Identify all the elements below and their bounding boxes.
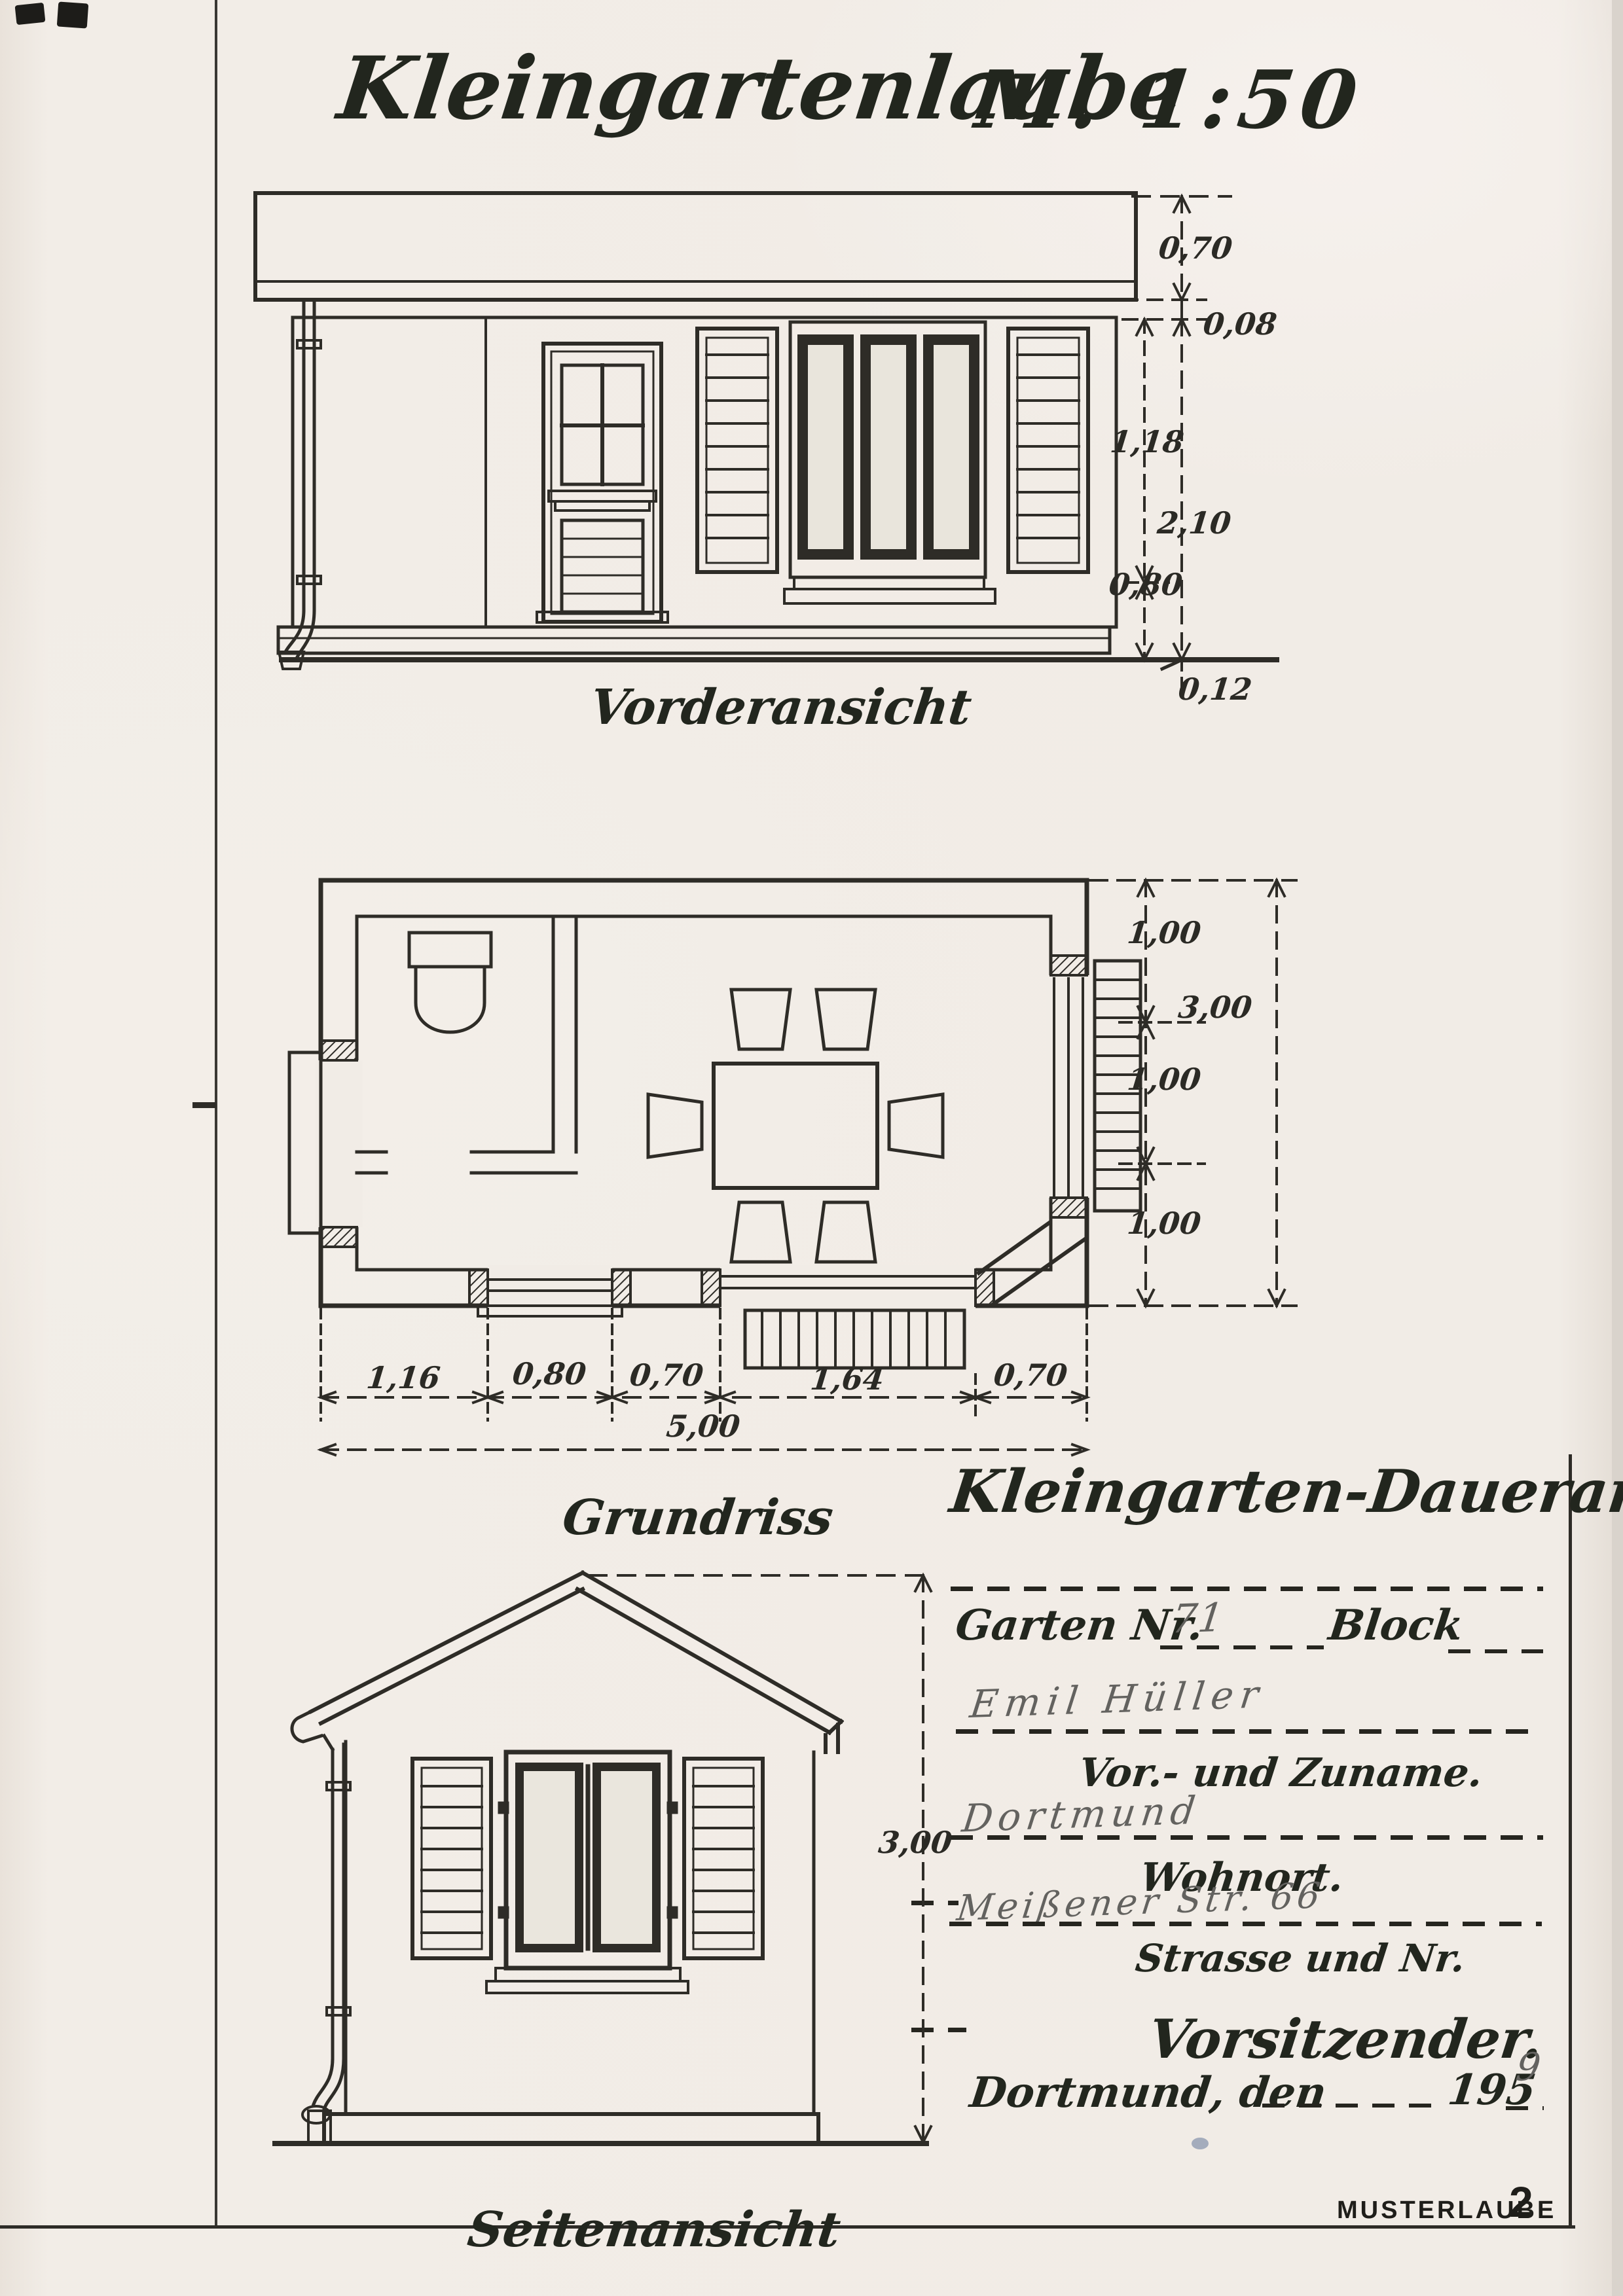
dim-label-window-band: 1,18 <box>1108 424 1186 459</box>
street-line <box>949 1922 1542 1926</box>
blue-speck <box>1192 2138 1209 2149</box>
garten-nr-value: 71 <box>1169 1594 1228 1642</box>
sheet-number: 2 <box>1509 2177 1536 2227</box>
exterior-walls <box>321 880 1087 1306</box>
side-elevation-drawing <box>259 1522 953 2189</box>
scan-artifact <box>15 3 46 25</box>
window-shutter-left <box>697 329 777 572</box>
garten-nr-line <box>1160 1645 1324 1649</box>
toilet-bowl <box>409 933 491 1032</box>
dining-table <box>714 1064 877 1188</box>
city-line <box>951 1835 1543 1840</box>
downpipe <box>279 300 321 669</box>
dim-label-plan-5: 0,70 <box>992 1357 1069 1393</box>
street-caption: Strasse und Nr. <box>1133 1936 1468 1981</box>
dim-label-plan-depth-3: 1,00 <box>1125 1206 1203 1241</box>
date-line <box>1262 2104 1439 2108</box>
dim-label-plan-depth-1: 1,00 <box>1125 915 1203 950</box>
double-window <box>486 1752 688 1993</box>
name-value: Emil Hüller <box>968 1672 1267 1727</box>
punch-mark <box>192 1102 216 1108</box>
dim-label-plan-total-depth: 3,00 <box>1176 990 1254 1025</box>
window-shutter-right <box>684 1759 763 1958</box>
dim-label-plan-total-width: 5,00 <box>665 1408 742 1444</box>
dim-label-parapet: 0,80 <box>1107 567 1184 602</box>
block-line <box>1448 1649 1543 1653</box>
window-shutter-left <box>412 1759 491 1958</box>
dim-label-roof-slab: 0,08 <box>1201 306 1279 342</box>
name-line <box>956 1729 1539 1734</box>
window-shutter-right <box>1008 329 1088 572</box>
dim-label-plan-2: 0,80 <box>511 1356 588 1391</box>
date-year-line <box>1506 2106 1544 2110</box>
flat-roof <box>255 193 1136 317</box>
date-year-hand: 9 <box>1514 2044 1544 2090</box>
side-elevation-label: Seitenansicht <box>465 2202 844 2258</box>
scan-edge-strip <box>1612 0 1623 2296</box>
chairs <box>648 990 943 1262</box>
scan-artifact <box>57 1 89 28</box>
downpipe <box>302 1736 350 2123</box>
gabled-roof <box>311 1573 841 1752</box>
page-right-border <box>1569 1454 1572 2228</box>
dim-label-plinth: 0,12 <box>1176 672 1254 707</box>
page-fold-line <box>215 0 217 2228</box>
dim-label-plan-depth-2: 1,00 <box>1125 1062 1203 1097</box>
chairman-label: Vorsitzender. <box>1145 2008 1546 2071</box>
entrance-door <box>537 344 668 622</box>
garten-nr-label: Garten Nr. <box>953 1601 1206 1650</box>
base-plinth <box>308 2111 818 2145</box>
dim-label-plan-4: 1,64 <box>809 1361 886 1397</box>
drawing-scale: M. 1:50 <box>971 52 1368 147</box>
street-value: Meißener Str. 66 <box>955 1874 1326 1929</box>
scanned-blueprint-page: Kleingartenlaube M. 1:50 <box>0 0 1623 2296</box>
date-prefix: Dortmund, den <box>967 2068 1329 2117</box>
gutter <box>292 1712 321 1742</box>
name-caption: Vor.- und Zuname. <box>1076 1750 1486 1796</box>
city-value: Dortmund <box>960 1787 1203 1840</box>
dim-label-plan-3: 0,70 <box>628 1357 705 1393</box>
window-triple <box>784 322 995 603</box>
block-label: Block <box>1326 1601 1466 1650</box>
toilet-room <box>357 916 576 1173</box>
dim-label-side-height: 3,00 <box>877 1825 954 1860</box>
form-rule <box>951 1587 1543 1591</box>
dim-label-wall-height: 2,10 <box>1156 505 1233 541</box>
front-elevation-label: Vorderansicht <box>587 679 975 736</box>
dim-label-roof-height: 0,70 <box>1157 230 1234 266</box>
form-heading: Kleingarten-Daueranlage <box>946 1457 1623 1526</box>
dim-label-plan-1: 1,16 <box>365 1360 442 1395</box>
